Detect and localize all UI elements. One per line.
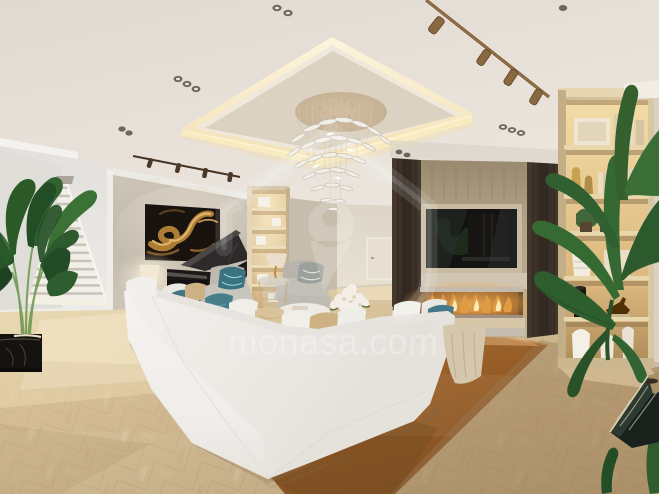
- svg-text:monasa.com: monasa.com: [227, 321, 438, 362]
